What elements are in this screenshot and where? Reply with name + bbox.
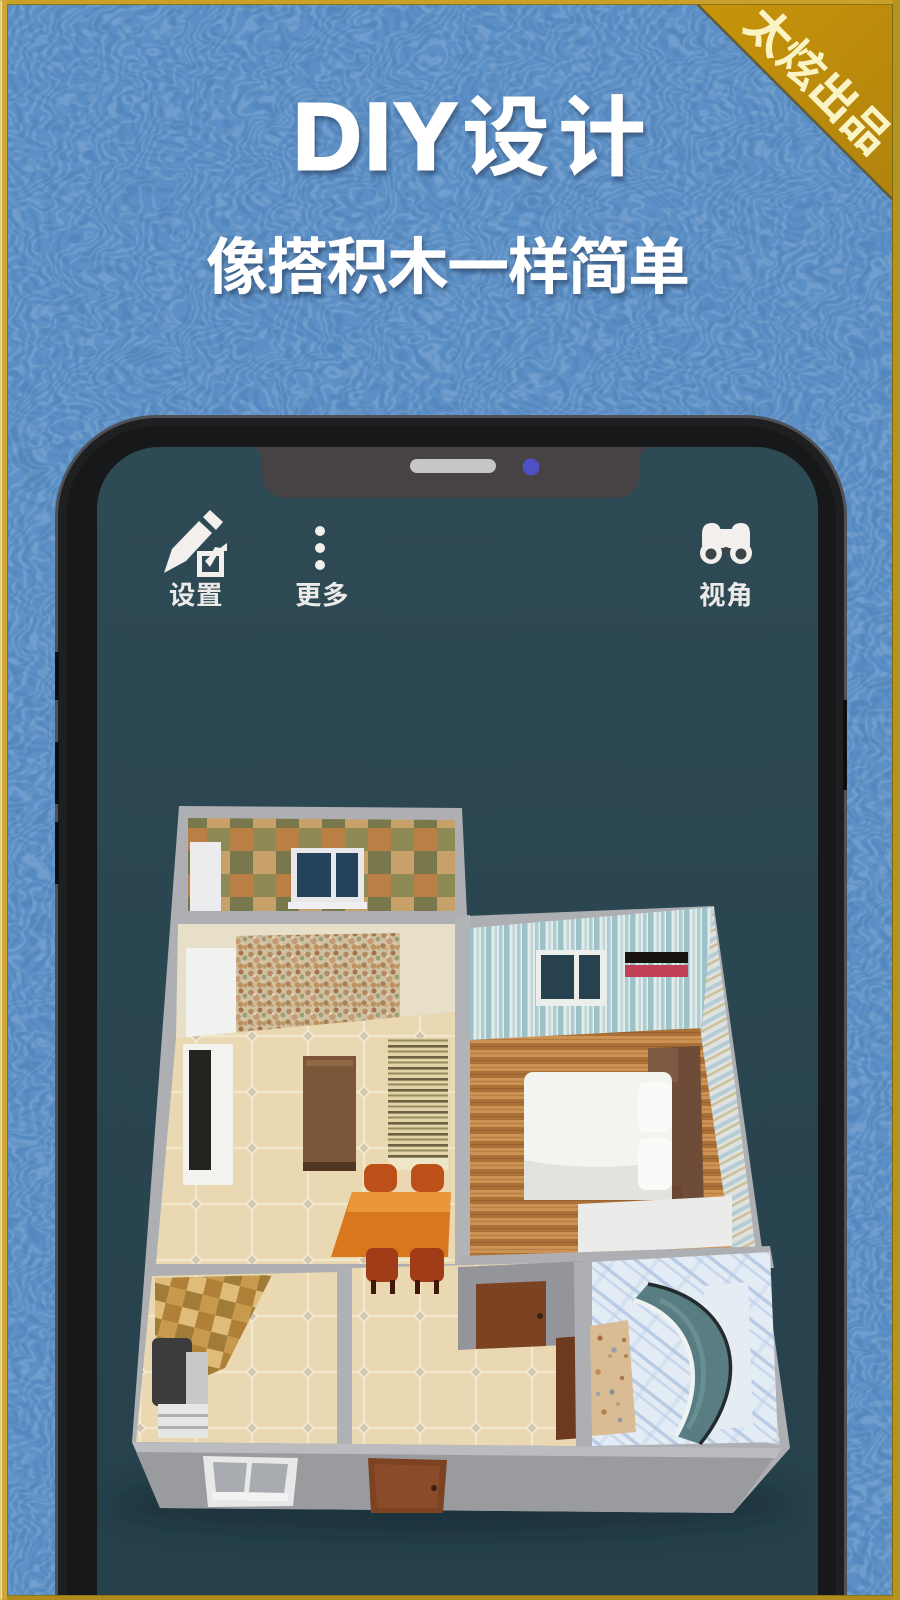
svg-text:DIY: DIY — [293, 84, 460, 190]
